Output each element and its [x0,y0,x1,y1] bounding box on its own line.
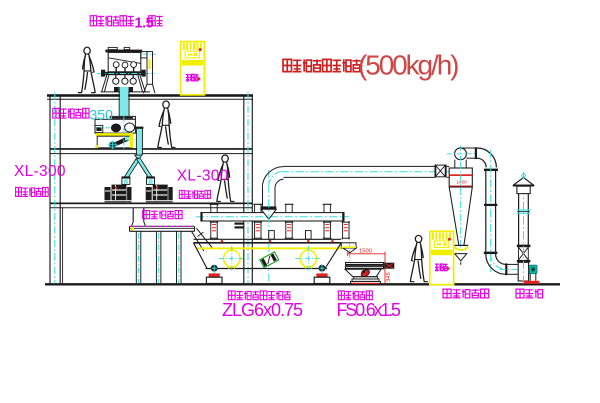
svg-text:FS0.6x1.5: FS0.6x1.5 [337,300,401,320]
svg-text:1400: 1400 [457,180,468,185]
svg-text:350: 350 [90,107,114,123]
svg-text:1500: 1500 [359,249,372,255]
svg-text:XL-300: XL-300 [177,168,229,185]
svg-text:1.5: 1.5 [135,16,154,32]
svg-text:XL-300: XL-300 [14,163,66,180]
svg-text:ZLG6x0.75: ZLG6x0.75 [222,300,303,320]
svg-text:345: 345 [386,272,392,282]
svg-text:(500kg/h): (500kg/h) [358,50,458,81]
